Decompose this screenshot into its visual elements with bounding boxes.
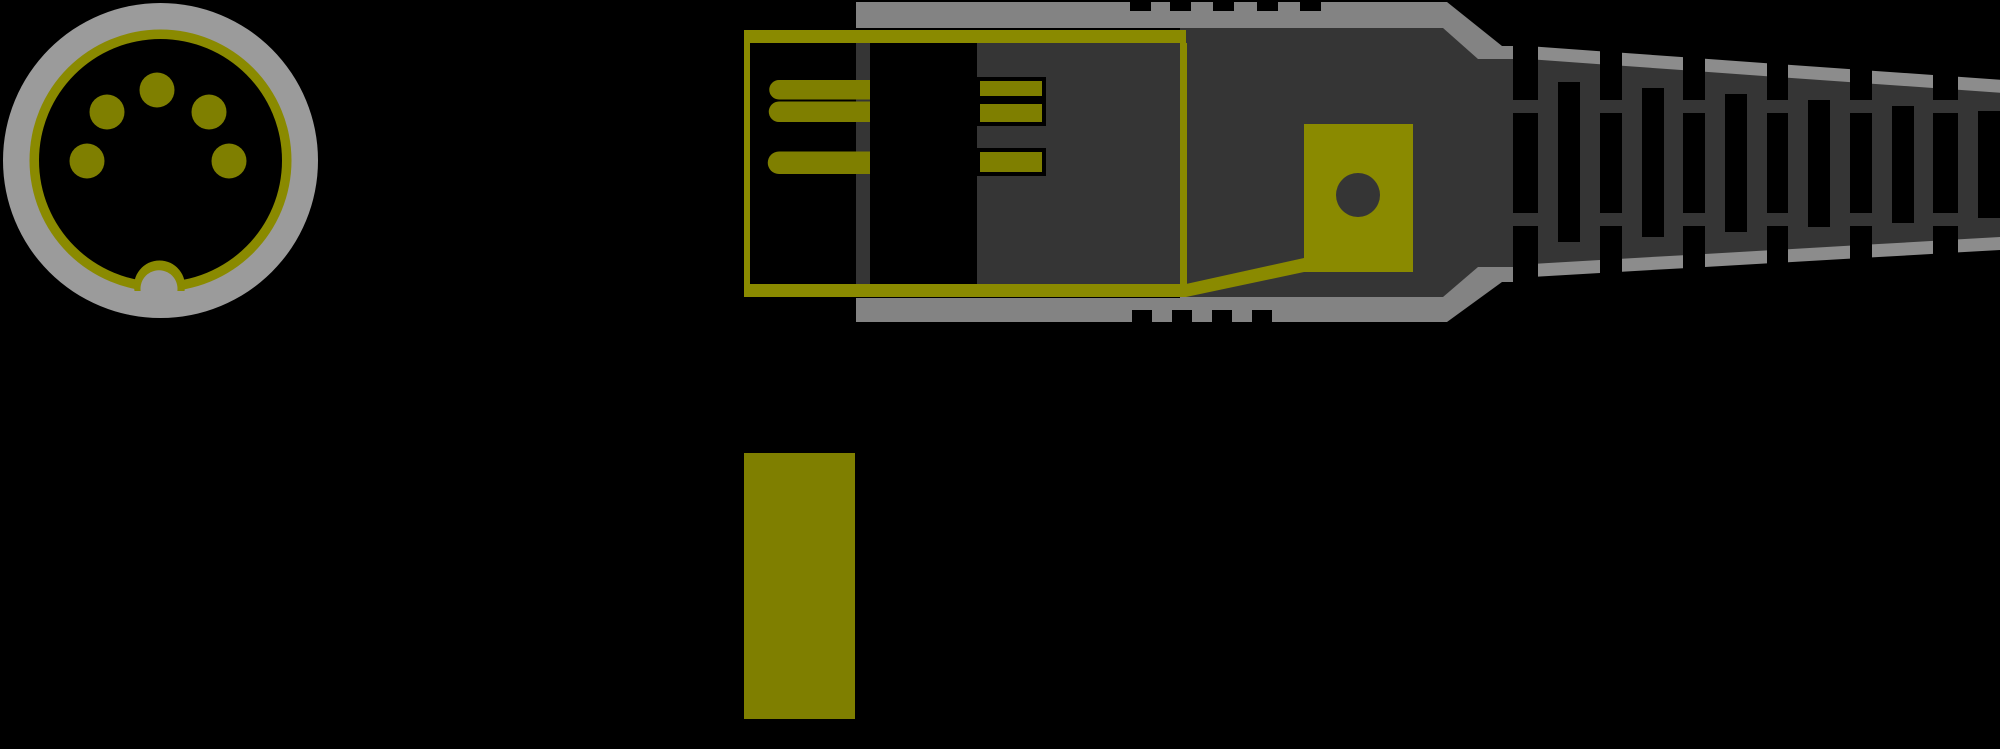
illustration-canvas (0, 0, 2000, 749)
rib-slot (1725, 94, 1747, 232)
side-pin-2 (769, 102, 870, 123)
sleeve-link (1930, 213, 1961, 226)
strain-relief-sleeve (1510, 47, 2000, 277)
sleeve-rib-6 (1958, 77, 2000, 253)
din-plug-illustration (0, 0, 2000, 749)
rib-slot (1892, 106, 1914, 223)
grip-notch (1213, 2, 1234, 11)
frame-right-edge (1180, 43, 1187, 287)
sleeve-link (1510, 100, 1541, 113)
pin-3-icon (140, 73, 175, 108)
grip-notch (1172, 310, 1192, 322)
grip-notch (1212, 310, 1232, 322)
sleeve-link (1930, 100, 1961, 113)
sleeve-link (1764, 213, 1791, 226)
sleeve-link (1597, 100, 1625, 113)
pin-4-icon (192, 95, 227, 130)
rib-slot (1642, 88, 1664, 237)
sleeve-link (1597, 213, 1625, 226)
sleeve-link (1847, 213, 1875, 226)
sleeve-rib-3 (1705, 59, 1767, 267)
frame-bottom-bar (744, 284, 1186, 297)
grip-notch (1252, 310, 1272, 322)
contact-bar-2 (978, 102, 1044, 124)
pin-2-icon (90, 95, 125, 130)
sleeve-link (1847, 100, 1875, 113)
sleeve-rib-5 (1872, 71, 1933, 258)
sleeve-link (1764, 100, 1791, 113)
pin-5-icon (212, 144, 247, 179)
grip-notch (1257, 2, 1278, 11)
contact-bar-1 (978, 79, 1044, 98)
clamp-screw-hole (1336, 173, 1380, 217)
sleeve-rib-2 (1622, 53, 1683, 272)
rib-slot (1978, 111, 2000, 218)
rib-slot (1558, 82, 1580, 242)
sleeve-rib-4 (1788, 65, 1850, 263)
contact-bar-3 (978, 150, 1044, 174)
olive-detail-block (744, 453, 855, 719)
pin-1-icon (70, 144, 105, 179)
sleeve-link (1510, 213, 1541, 226)
grip-notch (1132, 310, 1152, 322)
sleeve-rib-1 (1538, 47, 1600, 277)
grip-notch (1170, 2, 1191, 11)
frame-left-edge (744, 30, 750, 297)
side-pin-3 (768, 152, 870, 175)
sleeve-link (1680, 100, 1708, 113)
rib-slot (1808, 100, 1830, 227)
side-pin-1 (769, 80, 870, 100)
frame-top-bar (744, 30, 1186, 43)
din-plug-front-view (3, 3, 318, 318)
grip-notch (1300, 2, 1321, 11)
sleeve-link (1680, 213, 1708, 226)
grip-notch (1130, 2, 1151, 11)
